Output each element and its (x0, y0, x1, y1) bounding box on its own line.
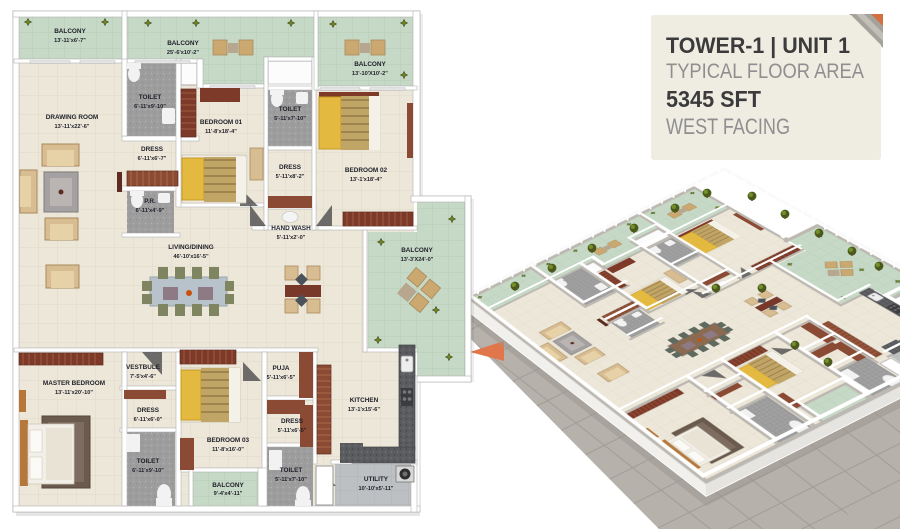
svg-text:11'-8'x16'-0": 11'-8'x16'-0" (212, 447, 244, 453)
svg-text:TOILET: TOILET (137, 458, 160, 465)
svg-text:KITCHEN: KITCHEN (350, 397, 379, 404)
svg-text:P.R.: P.R. (144, 198, 156, 205)
svg-text:BALCONY: BALCONY (354, 61, 386, 68)
svg-text:5'-11'x6'-5": 5'-11'x6'-5" (278, 428, 307, 434)
svg-text:DRESS: DRESS (279, 164, 302, 171)
svg-text:25'-6'x10'-2": 25'-6'x10'-2" (167, 50, 199, 56)
svg-text:13'-10'X10'-2": 13'-10'X10'-2" (352, 71, 388, 77)
svg-text:TOILET: TOILET (279, 106, 302, 113)
svg-text:WEST FACING: WEST FACING (666, 114, 790, 139)
svg-text:PUJA: PUJA (272, 365, 289, 372)
svg-text:5'-11'x7'-10": 5'-11'x7'-10" (275, 477, 307, 483)
svg-text:9'-4'x4'-11": 9'-4'x4'-11" (214, 491, 243, 497)
svg-text:5'-11'x7'-10": 5'-11'x7'-10" (274, 116, 306, 122)
svg-text:BALCONY: BALCONY (54, 28, 86, 35)
svg-text:BEDROOM 01: BEDROOM 01 (200, 119, 243, 126)
svg-text:13'-1'x18'-4": 13'-1'x18'-4" (350, 177, 382, 183)
svg-text:11'-8'x18'-4": 11'-8'x18'-4" (205, 129, 237, 135)
svg-text:13'-11'x20'-10": 13'-11'x20'-10" (55, 390, 93, 396)
svg-text:TYPICAL FLOOR AREA: TYPICAL FLOOR AREA (666, 60, 864, 83)
svg-text:5'-11'x8'-2": 5'-11'x8'-2" (276, 174, 305, 180)
svg-text:BALCONY: BALCONY (212, 482, 244, 489)
svg-text:5'-11'x2'-0": 5'-11'x2'-0" (277, 235, 306, 241)
svg-text:13'-11'x22'-6": 13'-11'x22'-6" (55, 124, 90, 130)
svg-text:5'-11'x6'-5": 5'-11'x6'-5" (267, 375, 296, 381)
svg-text:5345 SFT: 5345 SFT (666, 86, 762, 112)
svg-text:TOWER-1 | UNIT 1: TOWER-1 | UNIT 1 (666, 33, 850, 58)
svg-text:7'-5'x4'-6": 7'-5'x4'-6" (130, 374, 156, 380)
svg-text:DRESS: DRESS (137, 407, 160, 414)
svg-text:TOILET: TOILET (139, 94, 162, 101)
svg-text:13'-3'X24'-0": 13'-3'X24'-0" (401, 257, 434, 263)
svg-text:13'-1'x15'-6": 13'-1'x15'-6" (348, 407, 380, 413)
svg-text:BEDROOM 03: BEDROOM 03 (207, 437, 250, 444)
svg-text:BEDROOM 02: BEDROOM 02 (345, 167, 388, 174)
svg-text:BALCONY: BALCONY (167, 40, 199, 47)
svg-text:DRAWING ROOM: DRAWING ROOM (46, 114, 99, 121)
svg-text:LIVING/DINING: LIVING/DINING (168, 244, 213, 251)
svg-text:10'-10'x5'-11": 10'-10'x5'-11" (359, 486, 394, 492)
svg-text:DRESS: DRESS (281, 418, 304, 425)
svg-text:6'-11'x9'-10": 6'-11'x9'-10" (134, 104, 166, 110)
svg-text:6'-11'x9'-10": 6'-11'x9'-10" (132, 468, 164, 474)
svg-text:TOILET: TOILET (280, 467, 303, 474)
svg-text:6'-11'x4'-9": 6'-11'x4'-9" (136, 208, 165, 214)
svg-text:6'-11'x6'-7": 6'-11'x6'-7" (138, 156, 167, 162)
svg-text:6'-11'x6'-0": 6'-11'x6'-0" (134, 417, 163, 423)
svg-text:VESTBULE: VESTBULE (126, 364, 161, 371)
svg-text:46'-10'x16'-5": 46'-10'x16'-5" (173, 254, 209, 260)
svg-text:DRESS: DRESS (141, 146, 164, 153)
svg-text:MASTER BEDROOM: MASTER BEDROOM (43, 380, 105, 387)
svg-text:BALCONY: BALCONY (401, 247, 433, 254)
svg-text:UTILITY: UTILITY (364, 476, 389, 483)
svg-text:13'-11'x6'-7": 13'-11'x6'-7" (54, 38, 86, 44)
svg-text:HAND WASH: HAND WASH (271, 225, 311, 232)
